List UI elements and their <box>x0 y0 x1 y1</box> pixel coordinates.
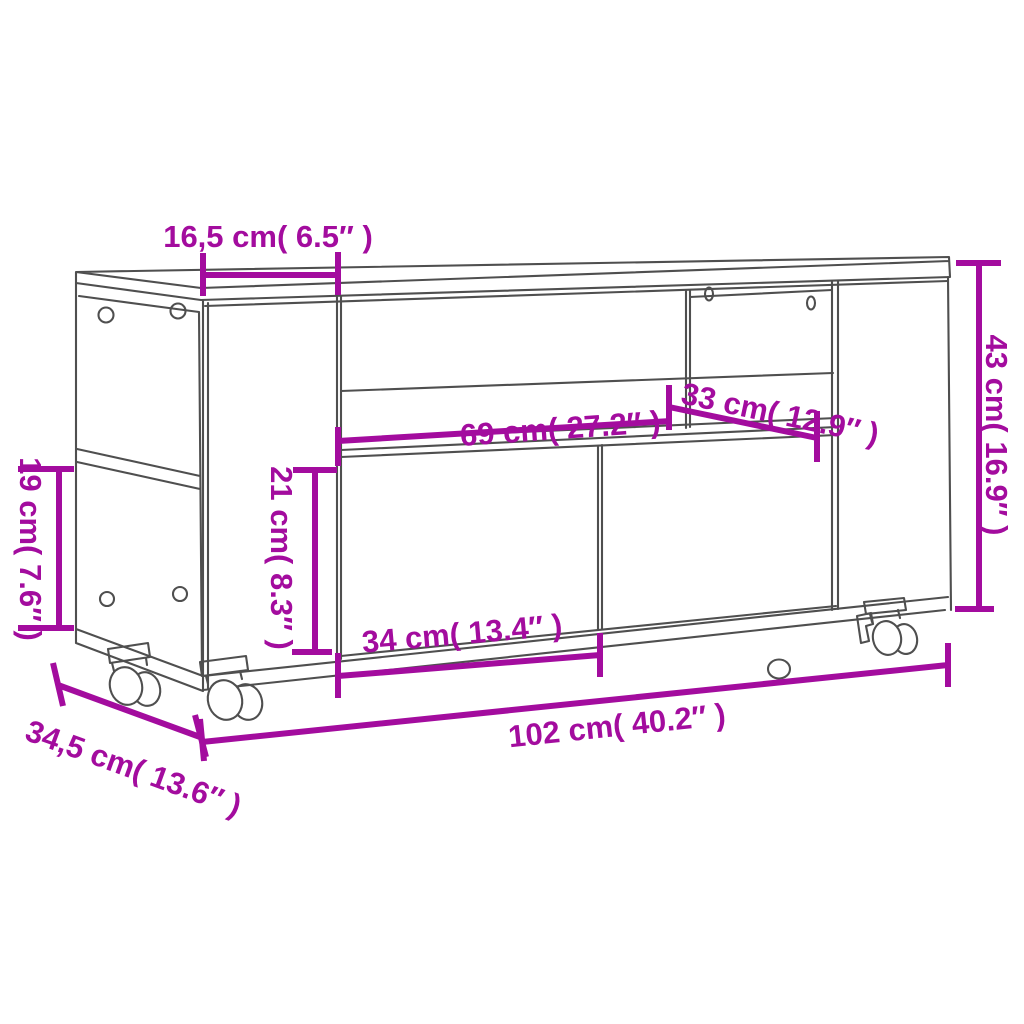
dimension-door-width: 34 cm( 13.4″ ) <box>338 607 600 698</box>
cable-hole-icon <box>171 304 186 319</box>
dimension-middle-shelf-width: 69 cm( 27.2″ ) <box>338 404 671 466</box>
side-panel-outline <box>76 283 203 691</box>
dimension-annotations: 16,5 cm( 6.5″ ) 43 cm( 16.9″ ) 33 cm( 12… <box>13 219 1014 823</box>
caster-wheel-back-right <box>768 660 790 679</box>
dimension-side-compartment-height: 19 cm( 7.6″ ) <box>13 457 74 641</box>
dimension-label: 19 cm( 7.6″ ) <box>13 457 48 641</box>
caster-wheel-front-right <box>857 598 920 658</box>
dimension-line <box>203 252 338 296</box>
caster-wheel-back-left <box>106 643 164 709</box>
dimension-label: 34,5 cm( 13.6″ ) <box>21 713 246 823</box>
product-dimension-diagram: 16,5 cm( 6.5″ ) 43 cm( 16.9″ ) 33 cm( 12… <box>0 0 1024 1024</box>
dimension-label: 16,5 cm( 6.5″ ) <box>163 219 373 254</box>
dimension-label: 43 cm( 16.9″ ) <box>979 335 1014 536</box>
top-panel-outline <box>76 257 950 306</box>
dimension-label: 69 cm( 27.2″ ) <box>459 404 662 453</box>
dimension-overall-height: 43 cm( 16.9″ ) <box>955 263 1014 609</box>
cable-hole-icon <box>99 308 114 323</box>
dimension-left-section-width: 16,5 cm( 6.5″ ) <box>163 219 373 296</box>
dimension-label: 34 cm( 13.4″ ) <box>360 607 563 659</box>
cable-hole-icon <box>100 592 114 606</box>
diagram-canvas: 16,5 cm( 6.5″ ) 43 cm( 16.9″ ) 33 cm( 12… <box>0 0 1024 1024</box>
dimension-door-height: 21 cm( 8.3″ ) <box>264 466 337 652</box>
cable-hole-icon <box>173 587 187 601</box>
dimension-label: 21 cm( 8.3″ ) <box>264 466 299 650</box>
caster-wheel-front-left <box>200 656 266 724</box>
back-panel-hole-icon <box>807 297 815 310</box>
dimension-right-compartment-width: 33 cm( 12.9″ ) <box>669 376 882 462</box>
dimension-overall-width: 102 cm( 40.2″ ) <box>200 643 948 761</box>
tv-stand-line-drawing <box>76 257 951 724</box>
